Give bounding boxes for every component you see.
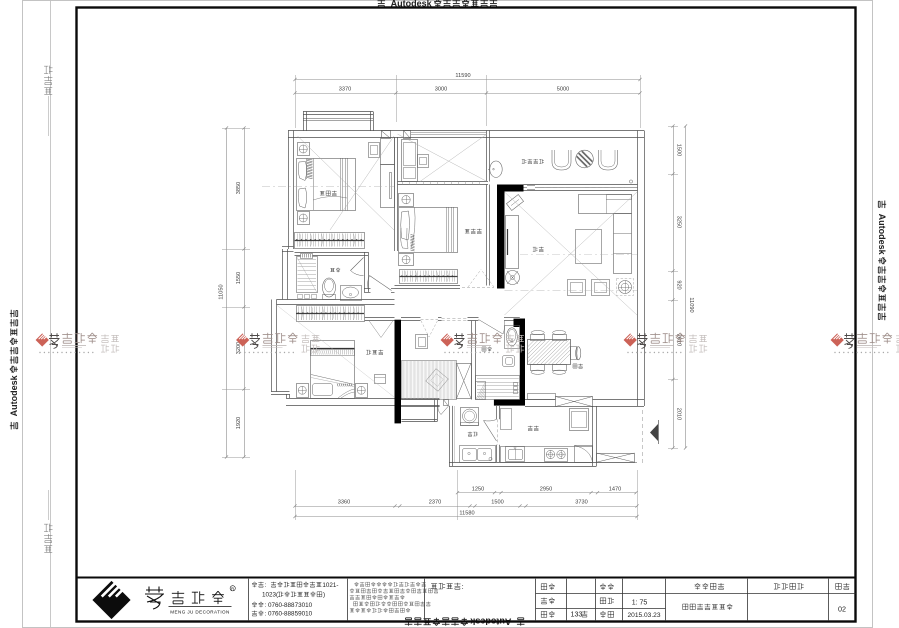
svg-text:2015.03.23: 2015.03.23 [627, 612, 660, 619]
svg-text:Autodesk: Autodesk [9, 374, 19, 416]
svg-text:02: 02 [838, 605, 846, 614]
svg-text:1500: 1500 [676, 144, 682, 156]
svg-text:1920: 1920 [236, 417, 242, 429]
svg-text:11590: 11590 [455, 73, 470, 79]
svg-text:3370: 3370 [339, 87, 351, 93]
svg-text:: 0760-88873010: : 0760-88873010 [264, 602, 312, 609]
svg-text:1470: 1470 [609, 487, 621, 493]
svg-text:2010: 2010 [676, 408, 682, 420]
svg-text:3250: 3250 [676, 216, 682, 228]
svg-text:1023(: 1023( [262, 592, 279, 599]
svg-text:133: 133 [571, 611, 583, 619]
svg-text:3730: 3730 [575, 500, 587, 506]
svg-text:3850: 3850 [236, 182, 242, 194]
svg-text:11090: 11090 [688, 297, 694, 312]
svg-text:1: 75: 1: 75 [632, 600, 648, 607]
svg-text:11050: 11050 [219, 284, 225, 299]
svg-text:MENG JU DECORATION: MENG JU DECORATION [170, 610, 229, 615]
svg-text:1550: 1550 [236, 272, 242, 284]
svg-text::: : [462, 582, 464, 591]
svg-text:1500: 1500 [491, 500, 503, 506]
svg-text::: : [264, 582, 266, 589]
svg-text:2370: 2370 [429, 500, 441, 506]
svg-text:11580: 11580 [459, 511, 474, 517]
svg-text:1021-: 1021- [322, 582, 338, 589]
svg-text:5000: 5000 [557, 87, 569, 93]
svg-text:R: R [231, 586, 234, 591]
svg-text:920: 920 [676, 280, 682, 289]
svg-text:Autodesk: Autodesk [877, 214, 887, 256]
svg-text:3000: 3000 [435, 87, 447, 93]
svg-text:1250: 1250 [472, 487, 484, 493]
svg-text:3360: 3360 [338, 500, 350, 506]
svg-text:2950: 2950 [540, 487, 552, 493]
svg-text:: 0760-88859010: : 0760-88859010 [264, 611, 312, 618]
svg-text:): ) [323, 592, 325, 599]
